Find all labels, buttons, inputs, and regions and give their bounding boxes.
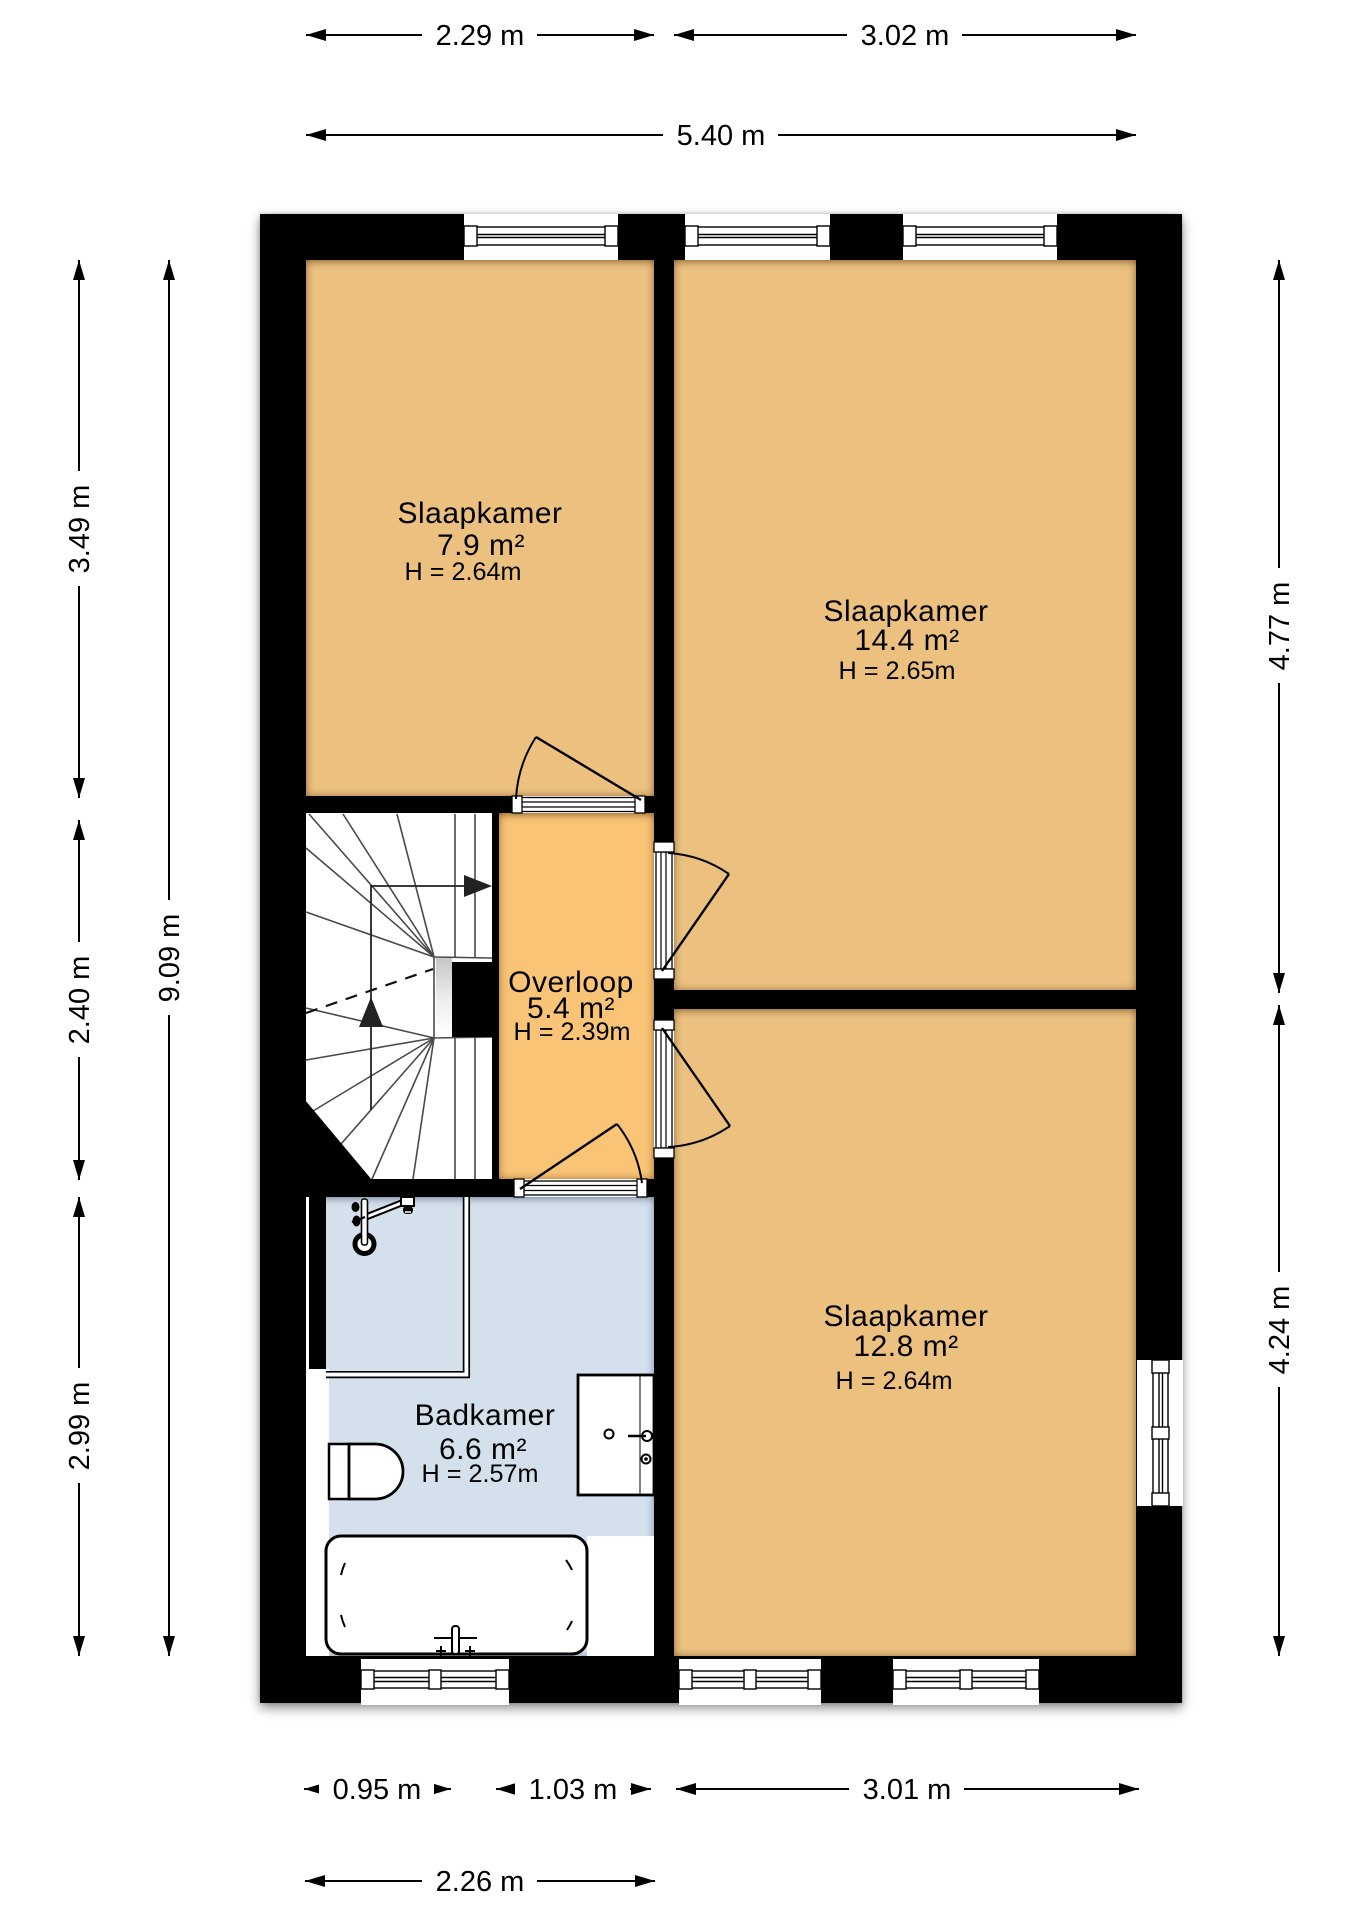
svg-text:2.40 m: 2.40 m: [64, 956, 96, 1045]
svg-text:4.77 m: 4.77 m: [1264, 582, 1296, 671]
svg-text:H = 2.64m: H = 2.64m: [405, 558, 522, 586]
svg-text:2.29 m: 2.29 m: [436, 20, 525, 52]
svg-text:2.99 m: 2.99 m: [64, 1382, 96, 1471]
svg-text:3.49 m: 3.49 m: [64, 485, 96, 574]
svg-text:1.03 m: 1.03 m: [529, 1774, 618, 1806]
svg-text:4.24 m: 4.24 m: [1264, 1286, 1296, 1375]
svg-text:5.40 m: 5.40 m: [677, 120, 766, 152]
svg-text:0.95 m: 0.95 m: [333, 1774, 422, 1806]
svg-text:14.4 m²: 14.4 m²: [854, 624, 959, 657]
svg-text:Slaapkamer: Slaapkamer: [823, 1300, 988, 1333]
svg-text:H = 2.39m: H = 2.39m: [514, 1018, 631, 1046]
svg-text:H = 2.57m: H = 2.57m: [422, 1460, 539, 1488]
svg-text:H = 2.65m: H = 2.65m: [839, 657, 956, 685]
svg-text:2.26 m: 2.26 m: [436, 1866, 525, 1898]
svg-text:3.01 m: 3.01 m: [863, 1774, 952, 1806]
svg-text:9.09 m: 9.09 m: [154, 914, 186, 1003]
svg-text:3.02 m: 3.02 m: [861, 20, 950, 52]
svg-text:H = 2.64m: H = 2.64m: [836, 1367, 953, 1395]
svg-text:Slaapkamer: Slaapkamer: [397, 497, 562, 530]
svg-text:12.8 m²: 12.8 m²: [853, 1330, 958, 1363]
svg-text:Badkamer: Badkamer: [415, 1399, 556, 1432]
